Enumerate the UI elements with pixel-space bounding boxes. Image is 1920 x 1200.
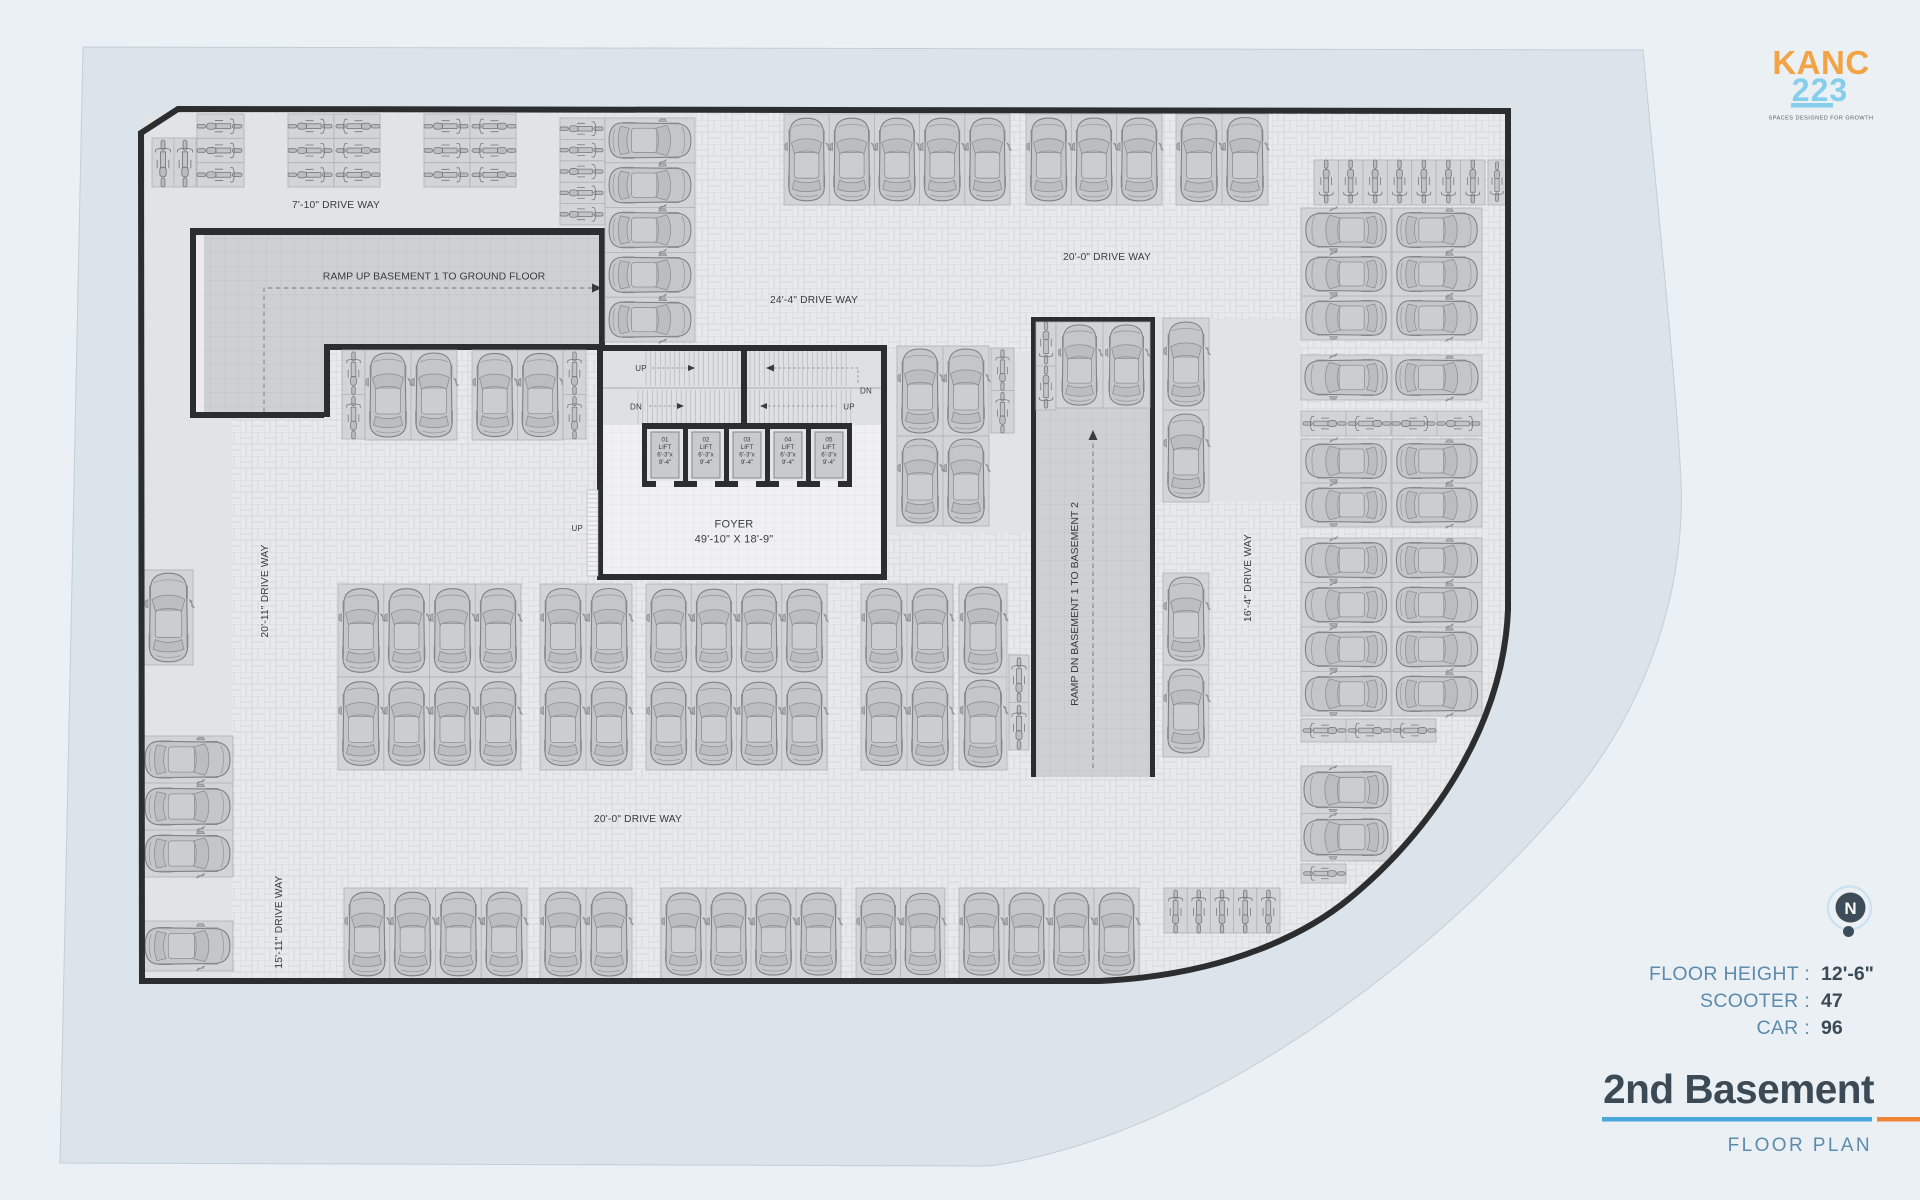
svg-text:9'-4": 9'-4" [659,459,671,466]
svg-text:FOYER: FOYER [715,519,754,531]
svg-text:LIFT: LIFT [782,444,795,451]
svg-text:9'-4": 9'-4" [823,459,835,466]
svg-text:01: 01 [662,437,669,444]
svg-text:DN: DN [860,387,872,396]
svg-text:CAR :: CAR : [1756,1017,1810,1039]
svg-text:6'-3"x: 6'-3"x [739,452,755,459]
svg-text:20'-0" DRIVE WAY: 20'-0" DRIVE WAY [594,814,682,825]
svg-text:20'-11" DRIVE WAY: 20'-11" DRIVE WAY [260,544,271,637]
svg-text:UP: UP [635,364,647,373]
svg-text:UP: UP [843,403,855,412]
svg-text:DN: DN [630,403,642,412]
svg-text:RAMP UP BASEMENT 1 TO GROUND F: RAMP UP BASEMENT 1 TO GROUND FLOOR [323,271,546,283]
svg-text:15'-11" DRIVE WAY: 15'-11" DRIVE WAY [274,875,285,968]
svg-text:24'-4" DRIVE WAY: 24'-4" DRIVE WAY [770,295,858,306]
svg-text:47: 47 [1821,990,1843,1012]
svg-text:FLOOR PLAN: FLOOR PLAN [1728,1135,1872,1156]
svg-text:6'-3"x: 6'-3"x [657,452,673,459]
svg-text:SPACES DESIGNED FOR GROWTH: SPACES DESIGNED FOR GROWTH [1769,116,1874,122]
svg-text:02: 02 [703,437,710,444]
svg-text:2nd Basement: 2nd Basement [1603,1066,1874,1112]
svg-text:9'-4": 9'-4" [700,459,712,466]
svg-text:RAMP DN BASEMENT 1 TO BASEMENT: RAMP DN BASEMENT 1 TO BASEMENT 2 [1069,502,1081,706]
svg-text:04: 04 [785,437,792,444]
svg-text:LIFT: LIFT [659,444,672,451]
svg-text:UP: UP [571,524,583,533]
svg-text:9'-4": 9'-4" [741,459,753,466]
svg-text:LIFT: LIFT [741,444,754,451]
svg-text:16'-4" DRIVE WAY: 16'-4" DRIVE WAY [1243,534,1254,622]
svg-text:6'-3"x: 6'-3"x [698,452,714,459]
svg-text:03: 03 [744,437,751,444]
svg-text:20'-0" DRIVE WAY: 20'-0" DRIVE WAY [1063,252,1151,263]
svg-text:12'-6": 12'-6" [1821,963,1874,985]
svg-text:7'-10" DRIVE WAY: 7'-10" DRIVE WAY [292,200,380,211]
svg-text:6'-3"x: 6'-3"x [821,452,837,459]
svg-text:SCOOTER :: SCOOTER : [1700,990,1810,1012]
svg-text:LIFT: LIFT [823,444,836,451]
svg-text:9'-4": 9'-4" [782,459,794,466]
svg-text:6'-3"x: 6'-3"x [780,452,796,459]
svg-text:FLOOR HEIGHT :: FLOOR HEIGHT : [1649,963,1810,985]
svg-text:223: 223 [1792,72,1848,108]
svg-text:05: 05 [826,437,833,444]
svg-text:N: N [1844,899,1856,918]
svg-text:96: 96 [1821,1017,1843,1039]
svg-text:LIFT: LIFT [700,444,713,451]
svg-text:49'-10" X 18'-9": 49'-10" X 18'-9" [695,534,774,546]
